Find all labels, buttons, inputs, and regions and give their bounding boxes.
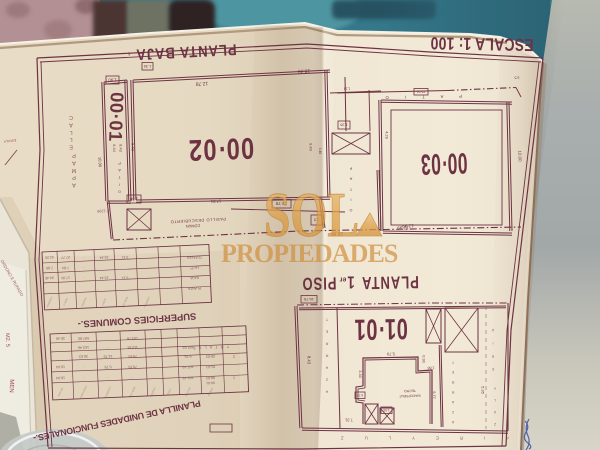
svg-text:15.44: 15.44 xyxy=(99,276,108,280)
svg-text:14.75: 14.75 xyxy=(103,354,112,358)
svg-text:O: O xyxy=(118,190,121,194)
svg-text:78.51: 78.51 xyxy=(128,354,137,358)
svg-text:18.39: 18.39 xyxy=(297,67,310,74)
svg-text:14.91: 14.91 xyxy=(210,199,221,205)
svg-text:A: A xyxy=(69,121,73,127)
svg-text:4.29: 4.29 xyxy=(385,131,390,140)
svg-text:9.75: 9.75 xyxy=(184,354,191,358)
svg-text:R: R xyxy=(451,380,454,384)
svg-text:00-01: 00-01 xyxy=(206,381,215,385)
svg-text:27.77: 27.77 xyxy=(61,255,70,259)
svg-text:·: · xyxy=(83,266,84,270)
svg-text:153.46: 153.46 xyxy=(78,345,89,349)
svg-text:00·01: 00·01 xyxy=(105,92,128,143)
svg-text:3.11: 3.11 xyxy=(122,255,129,259)
svg-text:·: · xyxy=(168,255,169,259)
svg-text:34.45: 34.45 xyxy=(45,276,54,280)
svg-text:er: er xyxy=(339,276,346,283)
svg-text:TECHO: TECHO xyxy=(404,389,416,393)
svg-text:3.5: 3.5 xyxy=(515,75,520,79)
svg-text:R: R xyxy=(325,354,328,358)
svg-text:36.53: 36.53 xyxy=(79,354,88,358)
svg-text:ESCALA 1: 100: ESCALA 1: 100 xyxy=(430,33,533,54)
svg-text:L: L xyxy=(494,398,496,402)
svg-text:R: R xyxy=(325,342,328,346)
svg-text:·: · xyxy=(107,345,108,349)
svg-text:00-03: 00-03 xyxy=(206,354,215,358)
svg-text:A: A xyxy=(72,182,76,188)
svg-text:PLANTA: PLANTA xyxy=(361,272,419,292)
svg-text:·: · xyxy=(83,255,84,259)
svg-text:M: M xyxy=(71,167,76,173)
svg-text:P: P xyxy=(72,174,76,180)
svg-text:TOTALES: TOTALES xyxy=(186,255,202,260)
svg-text:2: 2 xyxy=(233,354,235,358)
svg-text:101.19: 101.19 xyxy=(182,376,193,380)
svg-text:44.25: 44.25 xyxy=(45,255,54,259)
svg-text:I: I xyxy=(119,182,120,186)
svg-text:76.51: 76.51 xyxy=(128,365,137,369)
svg-text:7.80: 7.80 xyxy=(46,266,53,270)
svg-text:9.43: 9.43 xyxy=(131,143,136,152)
svg-text:BAJA: BAJA xyxy=(189,276,198,280)
svg-text:5.79: 5.79 xyxy=(104,365,111,369)
svg-text:INACCESIBLE: INACCESIBLE xyxy=(399,394,420,399)
svg-text:0.46: 0.46 xyxy=(318,148,322,155)
svg-text:8.43: 8.43 xyxy=(119,144,123,151)
svg-text:A: A xyxy=(325,390,328,394)
svg-text:·: · xyxy=(146,255,147,259)
svg-text:P: P xyxy=(72,152,76,158)
svg-text:01-01: 01-01 xyxy=(206,365,215,369)
svg-text:Z: Z xyxy=(494,422,496,426)
svg-text:1.35: 1.35 xyxy=(340,123,347,127)
svg-text:L: L xyxy=(69,136,72,142)
svg-text:00·02: 00·02 xyxy=(187,131,254,167)
svg-text:0.72: 0.72 xyxy=(357,393,363,397)
svg-text:1.35: 1.35 xyxy=(144,64,151,68)
svg-text:00·03: 00·03 xyxy=(420,146,468,180)
svg-text:0.90: 0.90 xyxy=(422,355,426,362)
svg-text:10.00: 10.00 xyxy=(97,157,102,168)
svg-text:16.04: 16.04 xyxy=(56,376,65,380)
svg-text:A I R E Y L U Z: A I R E Y L U Z xyxy=(331,436,509,441)
svg-text:1.55: 1.55 xyxy=(383,408,389,412)
svg-text:597.85: 597.85 xyxy=(78,336,89,340)
svg-text:E: E xyxy=(69,144,73,150)
svg-text:·: · xyxy=(83,376,84,380)
svg-text:·: · xyxy=(107,376,108,380)
svg-text:M2. 5: M2. 5 xyxy=(4,333,10,347)
svg-text:4→: 4→ xyxy=(123,50,131,56)
svg-text:17.91: 17.91 xyxy=(61,276,70,280)
svg-text:·: · xyxy=(132,376,133,380)
svg-text:PROPIEDADES: PROPIEDADES xyxy=(221,239,398,268)
svg-text:107.19: 107.19 xyxy=(182,365,193,369)
svg-text:16.04: 16.04 xyxy=(56,365,65,369)
svg-text:1.90: 1.90 xyxy=(108,78,117,83)
svg-text:C: C xyxy=(69,114,73,120)
svg-text:12.78: 12.78 xyxy=(195,80,208,87)
svg-text:8.43: 8.43 xyxy=(307,356,312,365)
svg-text:5.35: 5.35 xyxy=(481,386,486,395)
svg-text:PLANTA: PLANTA xyxy=(187,286,201,291)
svg-text:112.51: 112.51 xyxy=(127,345,138,349)
svg-text:1: 1 xyxy=(233,376,235,380)
svg-text:·: · xyxy=(83,276,84,280)
svg-text:7.31: 7.31 xyxy=(344,417,353,422)
svg-text:01·01: 01·01 xyxy=(354,312,408,346)
svg-text:·: · xyxy=(83,365,84,369)
svg-text:16.75: 16.75 xyxy=(303,297,314,302)
svg-text:5.79: 5.79 xyxy=(386,351,395,356)
svg-text:1.13: 1.13 xyxy=(344,86,350,90)
svg-text:A: A xyxy=(325,366,328,370)
svg-text:PISO: PISO xyxy=(301,273,336,293)
svg-text:MEN: MEN xyxy=(8,379,14,393)
svg-text:·: · xyxy=(146,266,147,270)
svg-text:E: E xyxy=(325,330,328,334)
svg-text:A: A xyxy=(72,159,76,165)
svg-text:COMUN: COMUN xyxy=(185,223,200,228)
svg-text:6.44: 6.44 xyxy=(112,144,116,151)
svg-text:3.33: 3.33 xyxy=(358,370,362,377)
svg-text:I: I xyxy=(492,341,493,345)
svg-text:Nº 1299: Nº 1299 xyxy=(97,208,111,213)
svg-text:15.01: 15.01 xyxy=(417,89,426,93)
svg-text:R: R xyxy=(451,390,454,394)
svg-text:3.11: 3.11 xyxy=(122,276,129,280)
svg-text:L: L xyxy=(69,129,72,135)
svg-text:9.43: 9.43 xyxy=(309,143,314,152)
svg-text:00-02: 00-02 xyxy=(206,376,215,380)
svg-text:7.84: 7.84 xyxy=(62,266,69,270)
svg-text:30.49: 30.49 xyxy=(56,336,65,340)
svg-text:1er P°: 1er P° xyxy=(189,266,199,270)
svg-text:1: 1 xyxy=(347,272,355,291)
svg-text:10.00: 10.00 xyxy=(517,150,522,162)
svg-text:12.99: 12.99 xyxy=(402,223,414,228)
svg-text:1.66: 1.66 xyxy=(427,366,434,370)
svg-text:153.78: 153.78 xyxy=(127,336,138,340)
svg-text:15.44: 15.44 xyxy=(99,255,108,259)
svg-text:5.77: 5.77 xyxy=(432,391,436,398)
